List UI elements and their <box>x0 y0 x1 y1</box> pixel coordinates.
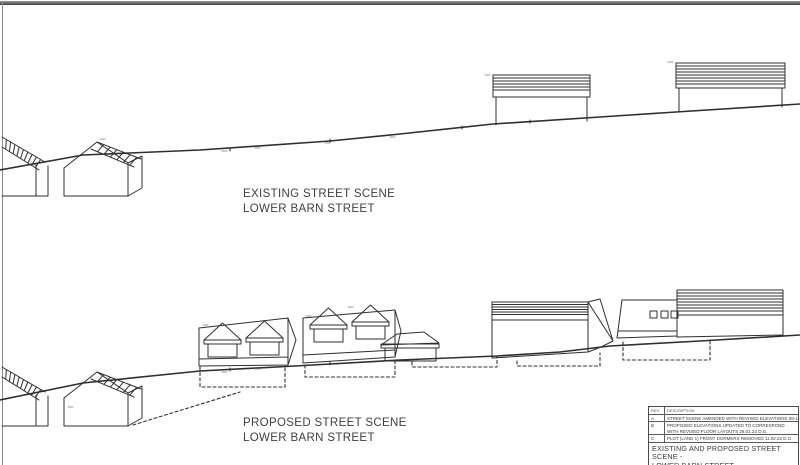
proposed-building-3 <box>492 299 613 358</box>
proposed-context-houses <box>2 367 142 426</box>
existing-ground-line <box>0 104 800 170</box>
small-window <box>661 311 668 318</box>
proposed-scene-label-line2: LOWER BARN STREET <box>243 431 407 446</box>
revision-description: PROPOSED ELEVATIONS UPDATED TO CORRESPON… <box>665 422 798 434</box>
dormer-window <box>310 308 347 342</box>
revision-letter: A <box>649 415 665 422</box>
existing-scene <box>0 62 800 196</box>
proposed-house-1 <box>199 318 296 366</box>
existing-ground-dashed <box>133 392 240 425</box>
revision-letter: B <box>649 422 665 434</box>
street-scene-drawing <box>0 0 800 465</box>
existing-scene-label-line1: EXISTING STREET SCENE <box>243 187 395 202</box>
revision-letter: C <box>649 435 665 442</box>
revision-row: B PROPOSED ELEVATIONS UPDATED TO CORRESP… <box>649 422 798 435</box>
rev-column-header: REV <box>649 407 665 414</box>
existing-scene-label-line2: LOWER BARN STREET <box>243 202 395 217</box>
existing-building-1 <box>493 75 590 125</box>
proposed-house-2 <box>303 305 401 363</box>
existing-scene-label: EXISTING STREET SCENE LOWER BARN STREET <box>243 187 395 217</box>
revision-description: PLOT (LAND 1) FRONT DORMERS REMOVED 11.0… <box>665 435 798 442</box>
small-window <box>650 311 657 318</box>
title-block: REV DESCRIPTION A STREET SCENE AMENDED W… <box>648 406 799 465</box>
revision-table-header: REV DESCRIPTION <box>649 407 798 415</box>
drawing-title-line1: EXISTING AND PROPOSED STREET SCENE - <box>652 445 795 462</box>
dormer-window <box>352 305 389 339</box>
proposed-scene-label: PROPOSED STREET SCENE LOWER BARN STREET <box>243 416 407 446</box>
dormer-window <box>246 321 283 355</box>
proposed-scene-label-line1: PROPOSED STREET SCENE <box>243 416 407 431</box>
description-column-header: DESCRIPTION <box>665 407 798 414</box>
drawing-sheet: EXISTING STREET SCENE LOWER BARN STREET … <box>0 0 800 465</box>
proposed-porch <box>381 332 439 361</box>
drawing-title: EXISTING AND PROPOSED STREET SCENE - LOW… <box>649 443 798 465</box>
proposed-building-4 <box>617 300 678 338</box>
existing-building-2 <box>676 63 785 112</box>
revision-row: A STREET SCENE AMENDED WITH REVISED ELEV… <box>649 415 798 423</box>
revision-description: STREET SCENE AMENDED WITH REVISED ELEVAT… <box>665 415 798 422</box>
proposed-building-5 <box>677 290 783 337</box>
revision-row: C PLOT (LAND 1) FRONT DORMERS REMOVED 11… <box>649 435 798 443</box>
dormer-window <box>204 323 241 357</box>
